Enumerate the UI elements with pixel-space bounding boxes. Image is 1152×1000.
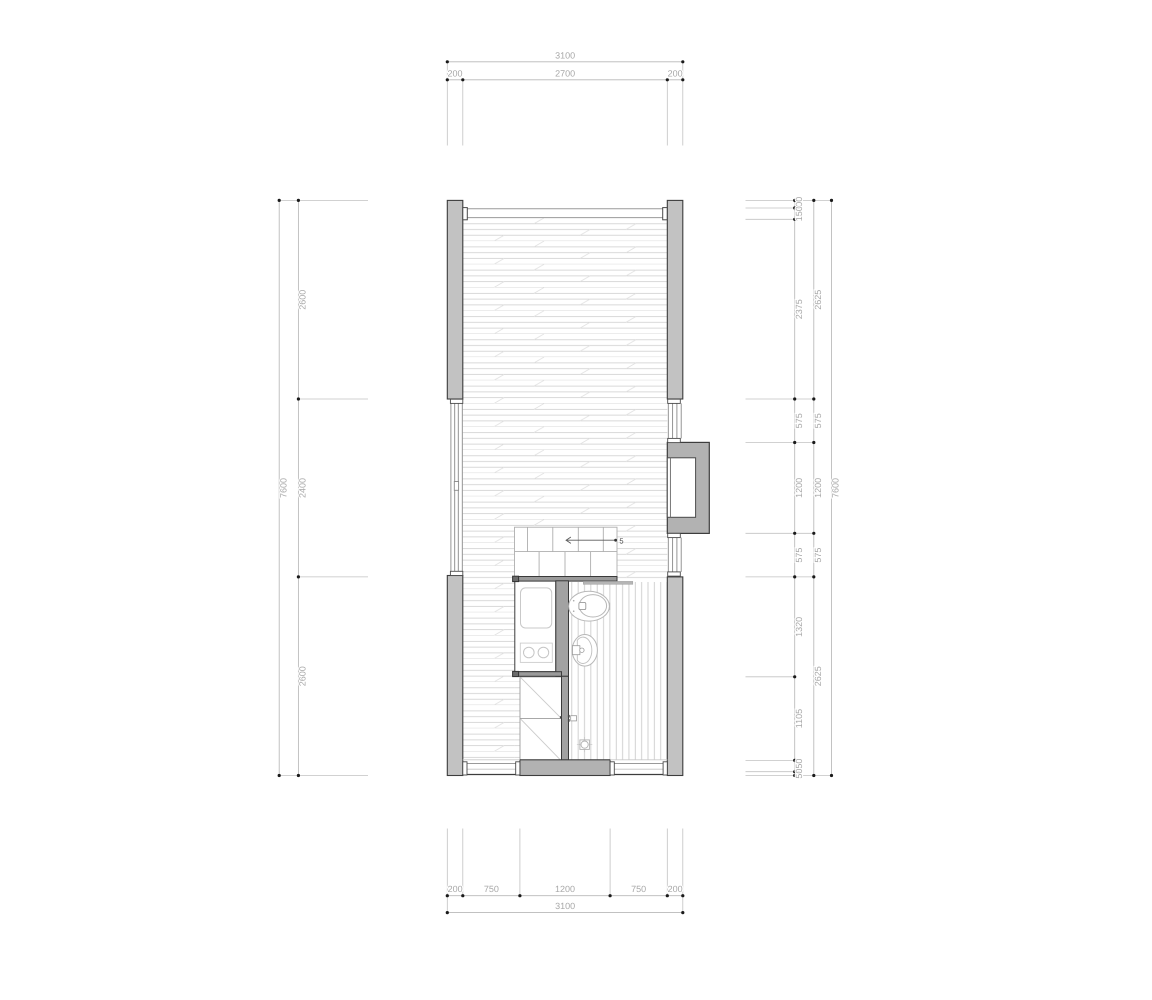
svg-text:750: 750 xyxy=(631,884,646,894)
svg-text:575: 575 xyxy=(813,413,823,428)
svg-text:575: 575 xyxy=(813,548,823,563)
svg-text:750: 750 xyxy=(484,884,499,894)
svg-text:1200: 1200 xyxy=(555,884,575,894)
svg-text:2375: 2375 xyxy=(794,299,804,319)
svg-text:1200: 1200 xyxy=(794,478,804,498)
svg-text:2625: 2625 xyxy=(813,290,823,310)
svg-text:200: 200 xyxy=(668,884,683,894)
svg-text:7600: 7600 xyxy=(831,478,841,498)
svg-text:200: 200 xyxy=(448,884,463,894)
svg-text:575: 575 xyxy=(794,413,804,428)
svg-text:2625: 2625 xyxy=(813,666,823,686)
svg-text:2700: 2700 xyxy=(555,68,575,78)
svg-text:3100: 3100 xyxy=(555,901,575,911)
svg-text:2400: 2400 xyxy=(298,478,308,498)
svg-text:2600: 2600 xyxy=(298,290,308,310)
svg-text:200: 200 xyxy=(668,68,683,78)
svg-text:3100: 3100 xyxy=(555,50,575,60)
svg-text:200: 200 xyxy=(447,68,462,78)
svg-text:2600: 2600 xyxy=(298,666,308,686)
svg-text:5: 5 xyxy=(619,537,623,546)
svg-text:575: 575 xyxy=(794,548,804,563)
svg-text:1200: 1200 xyxy=(813,478,823,498)
svg-text:150: 150 xyxy=(794,206,804,221)
svg-text:7600: 7600 xyxy=(279,478,289,498)
svg-text:1105: 1105 xyxy=(794,709,804,728)
svg-text:50: 50 xyxy=(794,769,804,779)
svg-text:1320: 1320 xyxy=(794,617,804,637)
